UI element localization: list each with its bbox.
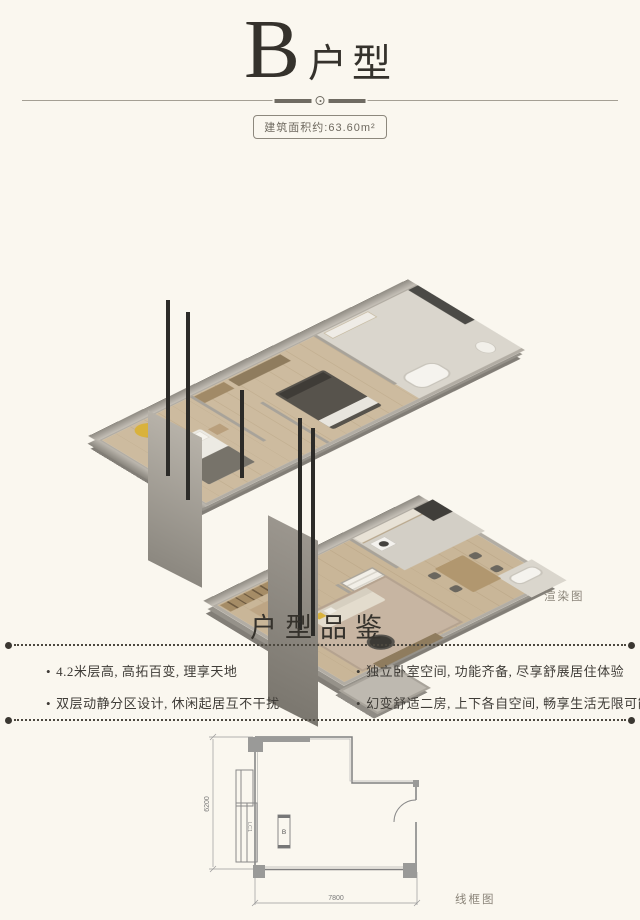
bullet-icon: • <box>46 664 51 679</box>
dining-chair <box>448 585 464 593</box>
columns <box>248 737 419 878</box>
unit-mark: B <box>282 829 286 836</box>
stair-railing <box>240 390 244 478</box>
wireframe-caption: 线框图 <box>455 891 496 907</box>
shaft-wall-upper <box>148 410 202 588</box>
area-badge-row: 建筑面积约:63.60m² <box>0 115 640 139</box>
window-tag: LC1 <box>246 822 252 832</box>
bullet-icon: • <box>46 696 51 711</box>
unit-suffix: 户型 <box>308 33 396 89</box>
dotted-divider-top <box>14 644 626 646</box>
render-figure <box>0 140 640 610</box>
washer-door <box>377 540 391 548</box>
feature-item: •幻变舒适二房, 上下各自空间, 畅享生活无限可能 <box>356 693 640 712</box>
divider-center <box>273 96 368 105</box>
unit-letter: B <box>244 8 300 92</box>
stair-railing <box>166 300 170 476</box>
title-divider <box>22 96 618 106</box>
feature-item: •独立卧室空间, 功能齐备, 尽享舒展居住体验 <box>356 661 624 680</box>
stair-railing <box>298 418 302 630</box>
stair-railing <box>311 428 315 636</box>
stair-railing <box>186 312 190 500</box>
area-badge: 建筑面积约:63.60m² <box>253 115 386 139</box>
feature-text: 独立卧室空间, 功能齐备, 尽享舒展居住体验 <box>366 664 624 679</box>
divider-ornament-icon <box>316 96 325 105</box>
height-dimension: 6200 <box>204 796 211 812</box>
render-caption: 渲染图 <box>544 588 585 604</box>
dining-chair <box>427 572 443 580</box>
width-dimension: 7800 <box>328 895 344 902</box>
divider-end-dot <box>628 717 635 724</box>
divider-end-dot <box>628 642 635 649</box>
nightstand <box>208 424 229 435</box>
feature-item: •4.2米层高, 高拓百变, 理享天地 <box>46 661 237 680</box>
divider-end-dot <box>5 642 12 649</box>
flyer-page: B 户型 建筑面积约:63.60m² <box>0 0 640 920</box>
bay-windows <box>236 770 257 862</box>
feature-text: 4.2米层高, 高拓百变, 理享天地 <box>56 664 237 679</box>
divider-bar-right <box>329 99 366 103</box>
dining-table <box>435 555 502 592</box>
lower-floor-plate <box>210 499 559 686</box>
feature-text: 双层动静分区设计, 休闲起居互不干扰 <box>56 696 280 711</box>
divider-end-dot <box>5 717 12 724</box>
divider-bar-left <box>275 99 312 103</box>
bullet-icon: • <box>356 664 361 679</box>
bullet-icon: • <box>356 696 361 711</box>
feature-text: 幻变舒适二房, 上下各自空间, 畅享生活无限可能 <box>366 696 640 711</box>
plan-outline <box>255 737 416 870</box>
wireframe-plan: 6200 7800 B LC1 <box>195 727 495 909</box>
features-heading: 户型品鉴 <box>0 606 640 645</box>
feature-item: •双层动静分区设计, 休闲起居互不干扰 <box>46 693 280 712</box>
page-title: B 户型 <box>0 8 640 92</box>
dotted-divider-bottom <box>14 719 626 721</box>
door-swing <box>394 800 416 822</box>
